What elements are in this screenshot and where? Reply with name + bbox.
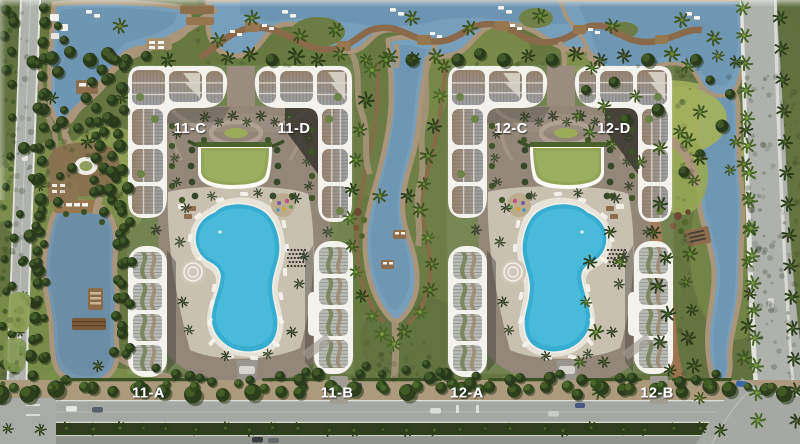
svg-text:12-C: 12-C [494,121,527,137]
svg-text:11-A: 11-A [132,386,165,402]
svg-text:12-A: 12-A [450,386,483,402]
svg-text:11-C: 11-C [174,121,207,137]
svg-text:11-B: 11-B [321,386,354,402]
svg-text:12-B: 12-B [640,386,673,402]
svg-text:12-D: 12-D [597,121,630,137]
svg-text:11-D: 11-D [278,121,311,137]
